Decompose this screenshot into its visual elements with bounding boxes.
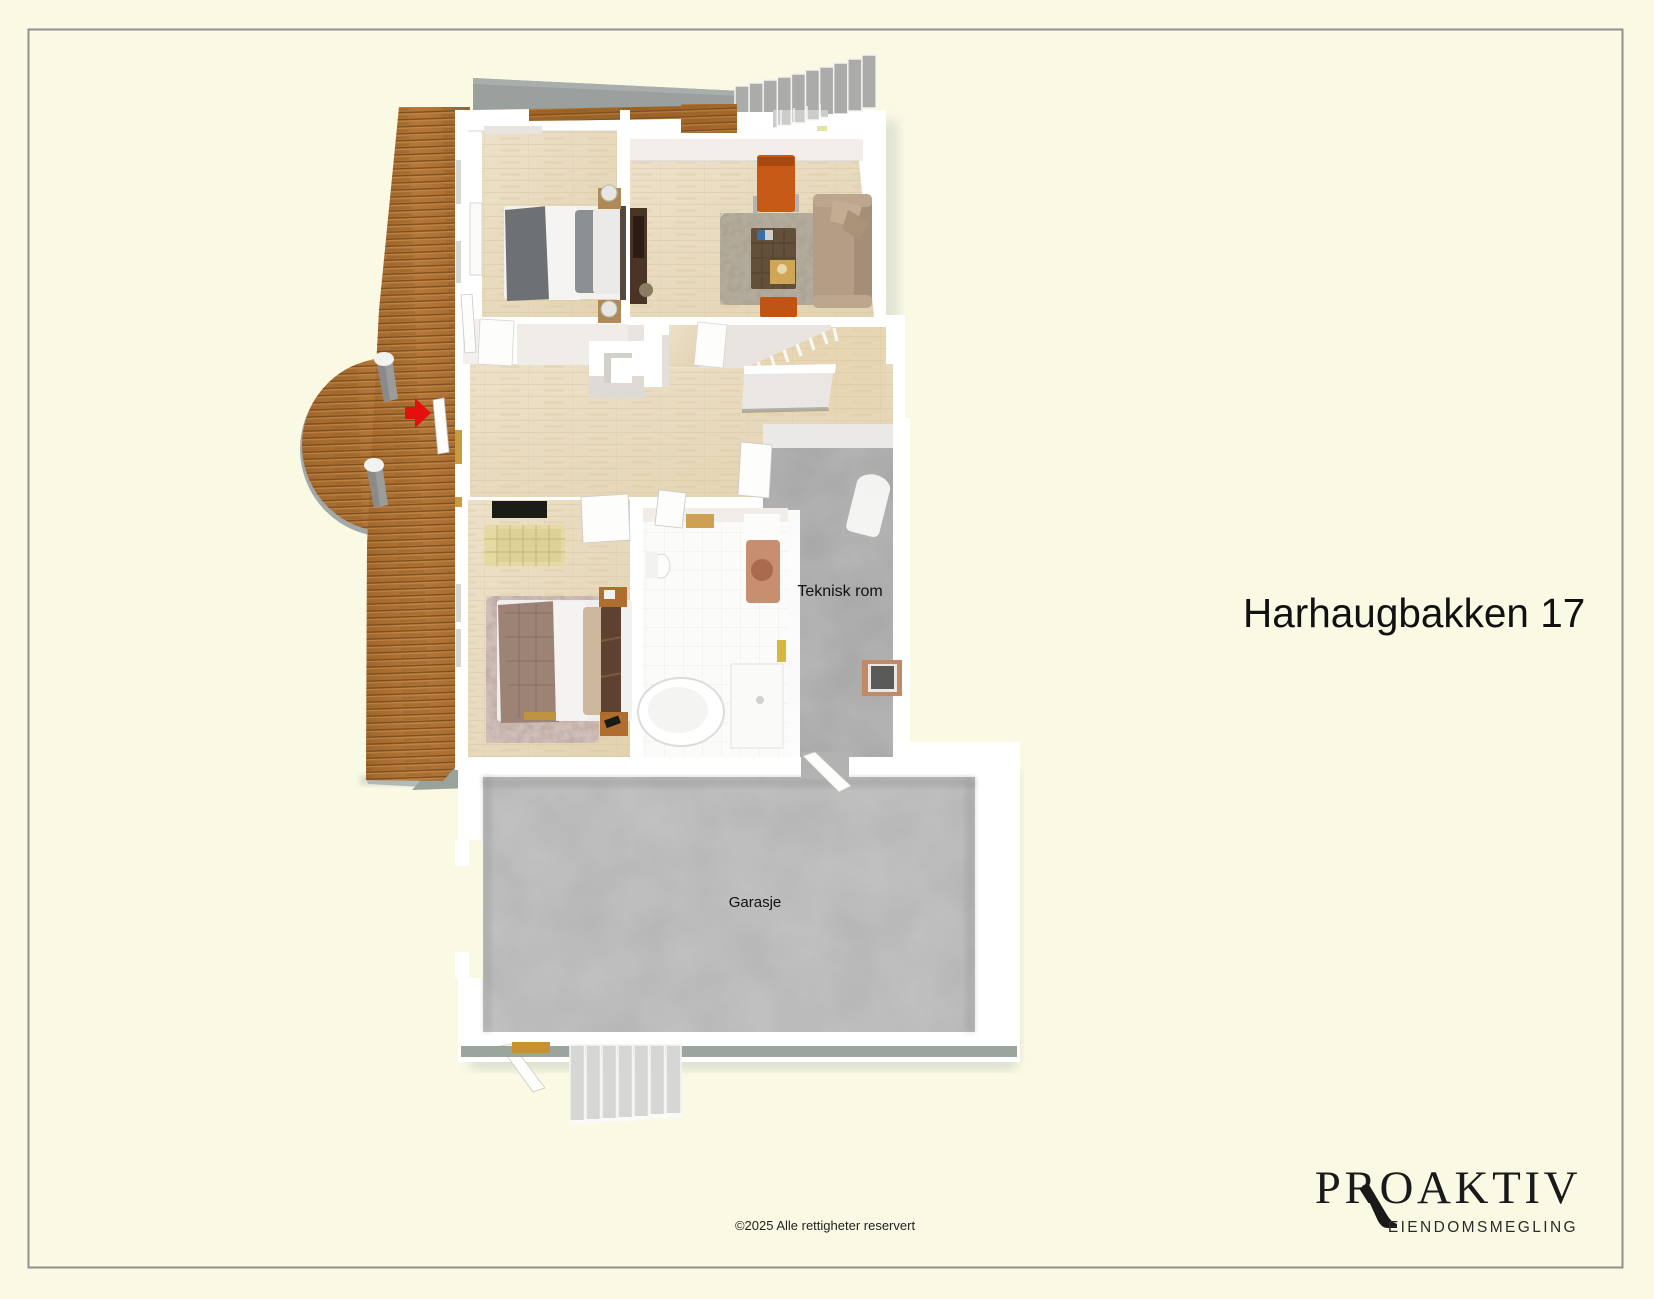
svg-text:Teknisk rom: Teknisk rom	[797, 583, 882, 600]
svg-text:Harhaugbakken 17: Harhaugbakken 17	[1243, 590, 1585, 636]
svg-text:©2025 Alle rettigheter reserve: ©2025 Alle rettigheter reservert	[735, 1218, 916, 1233]
svg-text:EIENDOMSMEGLING: EIENDOMSMEGLING	[1388, 1219, 1578, 1236]
svg-text:Garasje: Garasje	[729, 894, 782, 911]
svg-text:PROAKTIV: PROAKTIV	[1315, 1162, 1581, 1214]
